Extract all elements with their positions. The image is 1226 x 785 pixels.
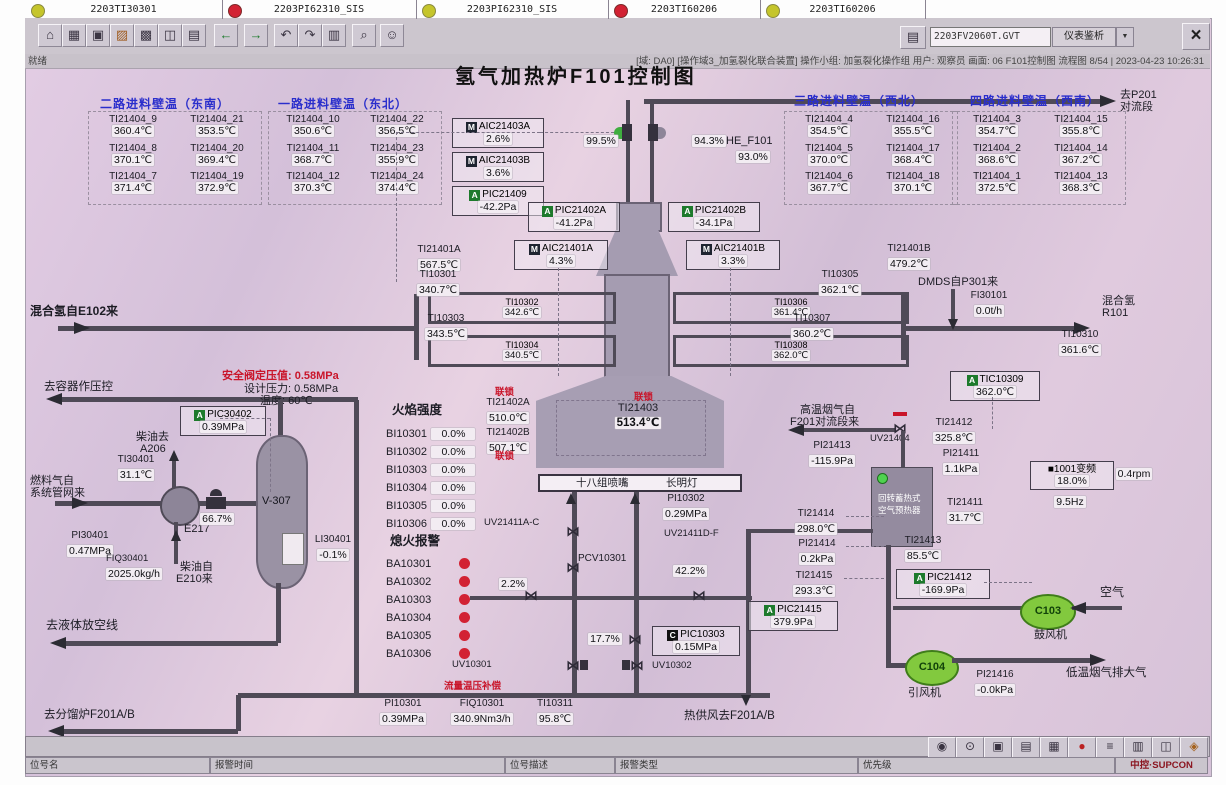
design-temp-label: 温度: 60℃ — [260, 396, 313, 407]
flame-row: BI10303 0.0% — [386, 460, 475, 478]
ti21414: TI21414298.0℃ — [786, 509, 846, 537]
instrument-pic10303[interactable]: CPIC10303 0.15MPa — [652, 626, 740, 656]
ti21401b: TI21401B479.2℃ — [874, 244, 944, 272]
fiq10301: FIQ10301340.9Nm3/h — [438, 699, 526, 727]
fuel-valve-value: 66.7% — [194, 509, 240, 527]
alarm-bell-icon[interactable]: ● — [1068, 737, 1096, 758]
temp-cell: TI21404_1372.5℃ — [955, 172, 1039, 201]
page-next-icon[interactable]: ↷ — [298, 24, 322, 47]
tag-search-input[interactable]: 2203FV2060T.GVT — [930, 27, 1051, 47]
fuel-valve-actuator — [210, 489, 222, 496]
ti30401: TI3040131.1℃ — [106, 455, 166, 483]
pic10303-valve-value: 17.7% — [583, 629, 627, 647]
stack-pipe-left — [626, 100, 630, 204]
temp-cell: TI21404_10350.6℃ — [271, 115, 355, 144]
pcv10301-valve-icon[interactable]: ⋈ — [566, 560, 580, 574]
lock-icon[interactable]: ⊙ — [956, 737, 984, 758]
dest-p201-line1: 去P201 — [1120, 90, 1157, 101]
vent-pipe — [64, 641, 278, 646]
instrument-pic30402[interactable]: APIC30402 0.39MPa — [180, 406, 266, 436]
list-icon[interactable]: ≡ — [1096, 737, 1124, 758]
fuel-main-pipe — [238, 693, 770, 698]
vfd-1001-box[interactable]: ■1001变频 18.0% — [1030, 461, 1114, 490]
flameout-row: BA10303 — [386, 590, 470, 608]
temp-cell: TI21404_21353.5℃ — [175, 115, 259, 144]
printer-icon[interactable]: ▤ — [900, 26, 926, 49]
pi21413: PI21413-115.9Pa — [798, 441, 866, 469]
hot-flue-pipe — [795, 428, 895, 432]
mix-out-label1: 混合氢 — [1102, 296, 1135, 307]
fiq30401-tag: FIQ30401 — [106, 554, 148, 564]
back-icon[interactable]: ← — [214, 24, 238, 47]
diesel-in-pipe — [174, 522, 178, 564]
hot-air-arrow — [741, 695, 751, 706]
sv-setpoint-label: 安全阀定压值: 0.58MPa — [222, 371, 339, 382]
preheater-run-indicator — [877, 473, 888, 484]
pi21414: PI214140.2kPa — [788, 539, 846, 567]
scada-screen: ⌂ ▦ ▣ ▨ ▩ ◫ ▤ ← → ↶ ↷ ▥ ⌕ ☺ ▤ 2203FV2060… — [0, 0, 1226, 785]
instrument-aic21401b[interactable]: MAIC21401B 3.3% — [686, 240, 780, 270]
layout-icon[interactable]: ◫ — [1152, 737, 1180, 758]
alarm-dot — [459, 576, 470, 587]
printer-icon[interactable]: ▤ — [1012, 737, 1040, 758]
air-label: 空气 — [1100, 587, 1124, 598]
instrument-tic10309[interactable]: ATIC10309 362.0℃ — [950, 371, 1040, 401]
hot-flue-arrow — [788, 424, 804, 436]
alarm-cell[interactable]: 2203PI62310_SIS — [416, 0, 609, 19]
flameout-row: BA10301 — [386, 554, 470, 572]
ti21411: TI2141131.7℃ — [936, 498, 994, 526]
flameout-list: BA10301 BA10302 BA10303 BA10304 BA10305 … — [386, 554, 470, 662]
burner-arrow-1 — [566, 493, 576, 504]
vfd-rpm-value: 0.4rpm — [1108, 464, 1160, 482]
uv10301-valve-icon[interactable]: ⋈ — [566, 658, 580, 672]
alarm-cell[interactable]: 2203TI30301 — [25, 0, 223, 19]
mix-out-label2: R101 — [1102, 308, 1128, 319]
temp-cell: TI21404_24374.4℃ — [355, 172, 439, 201]
alarm-dot — [459, 558, 470, 569]
dashed-link — [558, 268, 559, 376]
ti21413: TI2141385.5℃ — [894, 536, 952, 564]
alarm-cell[interactable]: 2203TI60206 — [608, 0, 761, 19]
group1-table: TI21404_10350.6℃ TI21404_22356.5℃ TI2140… — [268, 111, 442, 205]
page-title: 氢气加热炉F101控制图 — [455, 66, 697, 88]
he-f101-tag: HE_F101 — [726, 136, 772, 147]
instrument-pic21402b[interactable]: APIC21402B -34.1Pa — [668, 202, 760, 232]
close-icon[interactable]: × — [1182, 23, 1210, 50]
temp-cell: TI21404_16355.5℃ — [871, 115, 955, 144]
temp-cell: TI21404_20369.4℃ — [175, 144, 259, 173]
to-f201-down-pipe — [236, 695, 241, 731]
flue-to-preheater-pipe — [901, 431, 905, 467]
to-vessel-label: 去容器作压控 — [44, 382, 113, 393]
cold-flue-arrow — [1090, 654, 1106, 666]
group4-title: 四路进料壁温（西南） — [970, 92, 1100, 109]
uv21411df-value: 42.2% — [668, 561, 712, 579]
temp-cell: TI21404_2368.6℃ — [955, 144, 1039, 173]
flameout-row: BA10302 — [386, 572, 470, 590]
uv10302-actuator — [622, 660, 630, 670]
dmds-pipe — [951, 289, 955, 321]
dashed-link — [730, 268, 731, 376]
vent-arrow — [50, 637, 66, 649]
c103-name-label: 鼓风机 — [1034, 630, 1067, 641]
alarm-dot — [459, 612, 470, 623]
instrument-pic21412[interactable]: APIC21412 -169.9Pa — [896, 569, 990, 599]
monitor-icon[interactable]: ▣ — [984, 737, 1012, 758]
field-tagname: 位号名 — [25, 757, 210, 774]
stack-base — [616, 202, 662, 232]
alarm-dot — [459, 630, 470, 641]
temp-cell: TI21404_14367.2℃ — [1039, 144, 1123, 173]
burner-arrow-2 — [630, 493, 640, 504]
stack-pipe-right — [650, 100, 654, 204]
diesel-to-label1: 柴油去 — [136, 432, 169, 443]
fan-c104[interactable]: C104 — [905, 650, 959, 686]
pcv10301-label: PCV10301 — [578, 553, 626, 564]
ti10310: TI10310361.6℃ — [1048, 330, 1112, 358]
flue-duct-arrow — [1100, 95, 1116, 107]
pi10301: PI103010.39MPa — [372, 699, 434, 727]
supcon-logo: 中控·SUPCON — [1115, 757, 1208, 774]
ti21412: TI21412325.8℃ — [922, 418, 986, 446]
he-f101-value: 93.0% — [728, 147, 778, 165]
preheater-label2: 空气预热器 — [878, 505, 921, 516]
dashed-link — [984, 582, 1032, 583]
page-prev-icon[interactable]: ↶ — [274, 24, 298, 47]
temp-cell: TI21404_7371.4℃ — [91, 172, 175, 201]
ready-status: 就绪 — [28, 57, 47, 67]
fuel-inlet-arrow — [72, 497, 88, 509]
dashed-link — [992, 397, 993, 429]
instrument-aic21403b[interactable]: MAIC21403B 3.6% — [452, 152, 544, 182]
v307-label: V-307 — [262, 496, 291, 507]
window-icon[interactable]: ▣ — [86, 24, 110, 47]
ti21402a: TI21402A510.0℃ — [476, 398, 540, 426]
pic10303-valve-icon[interactable]: ⋈ — [628, 632, 642, 646]
uv21411ac-label: UV21411A-C — [484, 518, 539, 528]
group2-table: TI21404_9360.4℃ TI21404_21353.5℃ TI21404… — [88, 111, 262, 205]
report-icon[interactable]: ▤ — [182, 24, 206, 47]
flame-row: BI10301 0.0% — [386, 424, 475, 442]
instrument-icon[interactable]: ◫ — [158, 24, 182, 47]
temp-cell: TI21404_19372.9℃ — [175, 172, 259, 201]
alarm-cell[interactable]: 2203TI60206 — [760, 0, 926, 19]
to-vessel-arrow — [46, 393, 62, 405]
temp-cell: TI21404_22356.5℃ — [355, 115, 439, 144]
fuel-gas-label1: 燃料气自 — [30, 476, 74, 487]
vessel-level-gauge — [282, 533, 304, 565]
uv10302-label: UV10302 — [652, 661, 692, 671]
alarm-cell[interactable]: 2203PI62310_SIS — [222, 0, 417, 19]
temp-cell: TI21404_5370.0℃ — [787, 144, 871, 173]
alarm-dot — [459, 594, 470, 605]
field-alarmtime: 报警时间 — [210, 757, 505, 774]
group4-table: TI21404_3354.7℃ TI21404_15355.8℃ TI21404… — [952, 111, 1126, 205]
diesel-out-arrow — [169, 450, 179, 461]
group2-title: 二路进料壁温（东南） — [100, 95, 230, 112]
field-priority: 优先级 — [858, 757, 1115, 774]
bypass-valve-value: 2.2% — [494, 574, 532, 592]
ti21403: TI21403513.4℃ — [606, 403, 670, 431]
temp-cell: TI21404_11368.7℃ — [271, 144, 355, 173]
group3-title: 三路进料壁温（西北） — [794, 92, 924, 109]
uv21411df-label: UV21411D-F — [664, 529, 719, 539]
flameout-row: BA10305 — [386, 626, 470, 644]
ti10311: TI1031195.8℃ — [526, 699, 584, 727]
temp-cell: TI21404_23355.9℃ — [355, 144, 439, 173]
dashed-link — [844, 578, 884, 579]
fuel-control-valve[interactable] — [206, 497, 226, 509]
pi10302: PI103020.29MPa — [654, 494, 718, 522]
instrument-aic21403a[interactable]: MAIC21403A 2.6% — [452, 118, 544, 148]
dmds-arrow — [948, 319, 958, 330]
diesel-from-label1: 柴油自 — [180, 562, 213, 573]
ti10305: TI10305362.1℃ — [808, 270, 872, 298]
temp-cell: TI21404_13368.3℃ — [1039, 172, 1123, 201]
burner-box — [538, 474, 742, 492]
flue-down-pipe — [886, 545, 891, 668]
fan-c103[interactable]: C103 — [1020, 594, 1076, 630]
air-duct-pipe — [893, 606, 1023, 610]
dashed-link — [846, 516, 884, 517]
instrument-pic21402a[interactable]: APIC21402A -41.2Pa — [528, 202, 620, 232]
to-vent-label: 去液体放空线 — [46, 620, 118, 631]
vessel-top-pipe — [60, 397, 358, 402]
view-icon[interactable]: ◉ — [928, 737, 956, 758]
uv21411ac-valve-icon[interactable]: ⋈ — [566, 524, 580, 538]
flameout-row: BA10304 — [386, 608, 470, 626]
overview-icon[interactable]: ▦ — [62, 24, 86, 47]
design-pressure-label: 设计压力: 0.58MPa — [244, 384, 338, 395]
interlock-label-2: 联锁 — [495, 452, 514, 462]
damper-right-body — [648, 124, 658, 141]
fi30101: FI301010.0t/h — [958, 291, 1020, 319]
instrument-aic21401a[interactable]: MAIC21401A 4.3% — [514, 240, 608, 270]
dashed-link — [846, 546, 884, 547]
fuel-gas-down-pipe — [354, 400, 359, 696]
furnace-graphic-icon[interactable]: ▨ — [110, 24, 134, 47]
mix-hydrogen-in-label: 混合氢自E102来 — [30, 306, 118, 317]
vessel-v307 — [256, 435, 308, 589]
home-icon[interactable]: ⌂ — [38, 24, 62, 47]
burners-label: 十八组喷嘴 — [576, 478, 629, 489]
flame-row: BI10304 0.0% — [386, 478, 475, 496]
temp-cell: TI21404_17368.4℃ — [871, 144, 955, 173]
flame-row: BI10302 0.0% — [386, 442, 475, 460]
diesel-in-arrow — [171, 530, 181, 541]
flame-row: BI10305 0.0% — [386, 496, 475, 514]
burner-cross-pipe — [470, 596, 752, 600]
session-info: [域: DA0] [操作域3_加氢裂化联合装置] 操作小组: 加氢裂化操作组 用… — [636, 57, 1204, 67]
dashed-link — [396, 132, 540, 133]
temp-cell: TI21404_12370.3℃ — [271, 172, 355, 201]
grid-icon[interactable]: ▩ — [134, 24, 158, 47]
uv21411df-valve-icon[interactable]: ⋈ — [692, 588, 706, 602]
hot-air-label: 热供风去F201A/B — [684, 711, 775, 722]
hot-flue-label1: 高温烟气自 — [800, 405, 855, 416]
document-icon[interactable]: ▥ — [1124, 737, 1152, 758]
vessel-top-nozzle — [278, 400, 283, 437]
temp-cell: TI21404_3354.7℃ — [955, 115, 1039, 144]
dashed-link — [540, 132, 614, 133]
ti10301: TI10301340.7℃ — [406, 270, 470, 298]
dmds-label: DMDS自P301来 — [918, 277, 998, 288]
group3-table: TI21404_4354.5℃ TI21404_16355.5℃ TI21404… — [784, 111, 958, 205]
book-icon[interactable]: ▥ — [322, 24, 346, 47]
feed-inlet-pipe — [58, 326, 416, 331]
fiq30401-value: 2025.0kg/h — [92, 564, 176, 582]
diesel-out-pipe — [172, 458, 176, 490]
flame-intensity-title: 火焰强度 — [392, 405, 442, 416]
flow-compensation-label: 流量温压补偿 — [444, 682, 501, 692]
cold-flue-label: 低温烟气排大气 — [1066, 668, 1147, 679]
temp-cell: TI21404_15355.8℃ — [1039, 115, 1123, 144]
ti21415: TI21415293.3℃ — [784, 571, 844, 599]
damper-left-value: 99.5% — [578, 131, 624, 149]
ti10303: TI10303343.5℃ — [414, 314, 478, 342]
group1-title: 一路进料壁温（东北） — [278, 95, 408, 112]
feed-flow-arrow — [74, 322, 90, 334]
temp-cell: TI21404_9360.4℃ — [91, 115, 175, 144]
uv10302-valve-icon[interactable]: ⋈ — [630, 658, 644, 672]
table-icon[interactable]: ▦ — [1040, 737, 1068, 758]
search-icon[interactable]: ⌕ — [352, 24, 376, 47]
flame-row: BI10306 0.0% — [386, 514, 475, 532]
horn-icon[interactable]: ◈ — [1180, 737, 1208, 758]
dashed-link — [270, 418, 271, 492]
instrument-view-dropdown[interactable]: 仪表鉴析 — [1052, 27, 1116, 47]
uv21404-actuator — [893, 412, 907, 416]
diesel-from-label2: E210来 — [176, 574, 213, 585]
uv10301-actuator — [580, 660, 588, 670]
alarm-dot — [459, 648, 470, 659]
flameout-alarm-title: 熄火报警 — [390, 536, 440, 547]
instrument-pic21415[interactable]: APIC21415 379.9Pa — [748, 601, 838, 631]
pilot-label: 长明灯 — [666, 478, 698, 489]
vfd-hz-value: 9.5Hz — [1048, 492, 1092, 510]
dashed-link — [396, 132, 397, 282]
to-f201-pipe — [62, 729, 238, 734]
air-inlet-arrow — [1070, 602, 1086, 614]
temp-cell: TI21404_6367.7℃ — [787, 172, 871, 201]
preheater-label1: 回转蓄热式 — [878, 493, 921, 504]
field-description: 位号描述 — [505, 757, 615, 774]
dashed-link — [220, 418, 270, 419]
vessel-drain-pipe — [276, 583, 281, 643]
ti10307: TI10307360.2℃ — [780, 314, 844, 342]
field-alarmtype: 报警类型 — [615, 757, 858, 774]
temp-cell: TI21404_8370.1℃ — [91, 144, 175, 173]
cold-flue-pipe — [952, 658, 1092, 663]
dropdown-arrow-icon[interactable]: ▼ — [1116, 27, 1134, 47]
temp-cell: TI21404_4354.5℃ — [787, 115, 871, 144]
temp-cell: TI21404_18370.1℃ — [871, 172, 955, 201]
flame-list: BI10301 0.0% BI10302 0.0% BI10303 0.0% B… — [386, 424, 475, 532]
user-icon[interactable]: ☺ — [380, 24, 404, 47]
to-f201-label: 去分馏炉F201A/B — [44, 710, 135, 721]
pi21411: PI214111.1kPa — [930, 449, 992, 477]
pi21416: PI21416-0.0kPa — [964, 670, 1026, 698]
c104-name-label: 引风机 — [908, 688, 941, 699]
forward-icon[interactable]: → — [244, 24, 268, 47]
uv10301-label: UV10301 — [452, 660, 492, 670]
